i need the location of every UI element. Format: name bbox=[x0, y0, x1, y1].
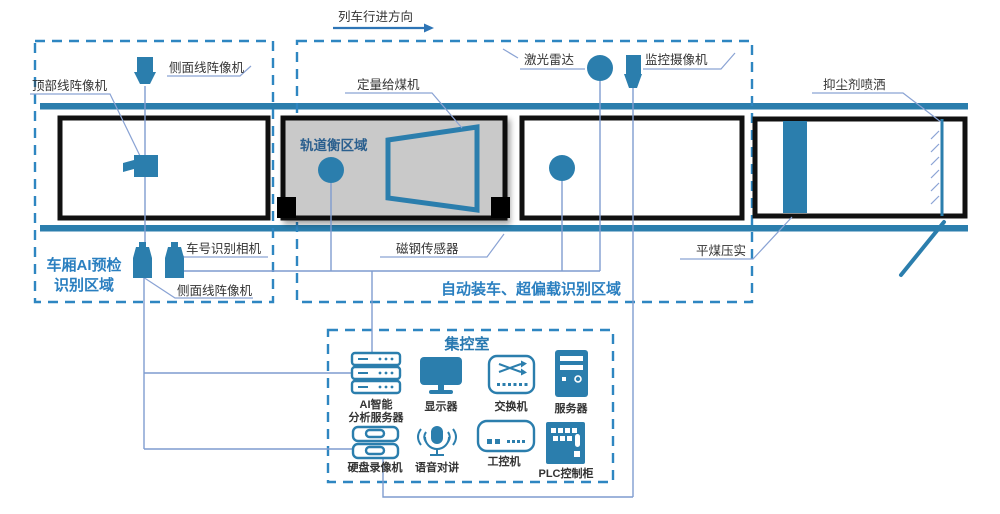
coal-loading-system-diagram: 列车行进方向 顶部线阵像机 侧面线阵像机 定量给煤机 激光雷达 监控摄像机 抑尘… bbox=[0, 0, 1000, 514]
server-tower-icon bbox=[555, 350, 588, 397]
label-side-line-camera-bottom: 侧面线阵像机 bbox=[177, 284, 253, 298]
label-server: 服务器 bbox=[555, 401, 589, 415]
track-scale-sensor-icon bbox=[318, 157, 344, 183]
arrow-head-icon bbox=[424, 24, 434, 33]
label-industrial-pc: 工控机 bbox=[488, 454, 521, 468]
voice-intercom-icon bbox=[418, 426, 456, 455]
label-middle-region: 自动装车、超偏载识别区域 bbox=[441, 280, 621, 298]
wagon-1 bbox=[60, 118, 268, 218]
label-cctv-camera: 监控摄像机 bbox=[645, 52, 708, 67]
coal-feeder-icon bbox=[388, 127, 477, 210]
dvr-icon bbox=[353, 427, 398, 458]
label-left-region-line2: 识别区域 bbox=[54, 276, 114, 294]
label-ai-server-line1: AI智能 bbox=[360, 397, 393, 411]
label-dvr: 硬盘录像机 bbox=[348, 460, 403, 474]
label-coal-compaction: 平煤压实 bbox=[696, 243, 746, 258]
label-magnetic-sensor: 磁钢传感器 bbox=[396, 241, 459, 256]
laser-radar-icon bbox=[587, 55, 613, 81]
side-line-camera-top-icon bbox=[134, 57, 156, 84]
coal-compaction-bar-icon bbox=[783, 121, 807, 213]
load-sensor-icon bbox=[549, 155, 575, 181]
side-line-camera-bottom-left-icon bbox=[133, 242, 152, 278]
network-switch-icon bbox=[489, 356, 534, 393]
label-network-switch: 交换机 bbox=[495, 399, 528, 413]
industrial-pc-icon bbox=[478, 421, 534, 451]
label-laser-radar: 激光雷达 bbox=[524, 53, 575, 67]
label-car-number-camera: 车号识别相机 bbox=[186, 241, 262, 256]
label-plc-cabinet: PLC控制柜 bbox=[539, 466, 594, 480]
label-track-scale-area: 轨道衡区域 bbox=[300, 137, 368, 153]
label-ai-server-line2: 分析服务器 bbox=[349, 410, 405, 424]
label-control-room: 集控室 bbox=[443, 335, 489, 353]
car-number-camera-icon bbox=[165, 242, 184, 278]
cctv-camera-icon bbox=[624, 55, 642, 88]
magnetic-sensor-left-icon bbox=[277, 197, 296, 218]
label-top-line-camera: 顶部线阵像机 bbox=[32, 78, 108, 93]
rail-bottom bbox=[40, 225, 968, 232]
diagram-canvas: 列车行进方向 顶部线阵像机 侧面线阵像机 定量给煤机 激光雷达 监控摄像机 抑尘… bbox=[0, 0, 1000, 514]
label-coal-feeder: 定量给煤机 bbox=[357, 77, 420, 92]
direction-arrow bbox=[333, 24, 434, 33]
label-monitor: 显示器 bbox=[425, 400, 459, 413]
label-left-region-line1: 车厢AI预检 bbox=[46, 256, 121, 274]
plc-cabinet-icon bbox=[546, 422, 585, 464]
label-dust-spray: 抑尘剂喷洒 bbox=[823, 77, 886, 92]
label-side-line-camera-top: 侧面线阵像机 bbox=[169, 61, 245, 75]
monitor-icon bbox=[420, 357, 462, 394]
label-voice-intercom: 语音对讲 bbox=[415, 460, 459, 474]
ai-server-icon bbox=[352, 353, 400, 393]
direction-label: 列车行进方向 bbox=[338, 9, 413, 24]
magnetic-sensor-right-icon bbox=[491, 197, 510, 218]
rail-top bbox=[40, 103, 968, 110]
